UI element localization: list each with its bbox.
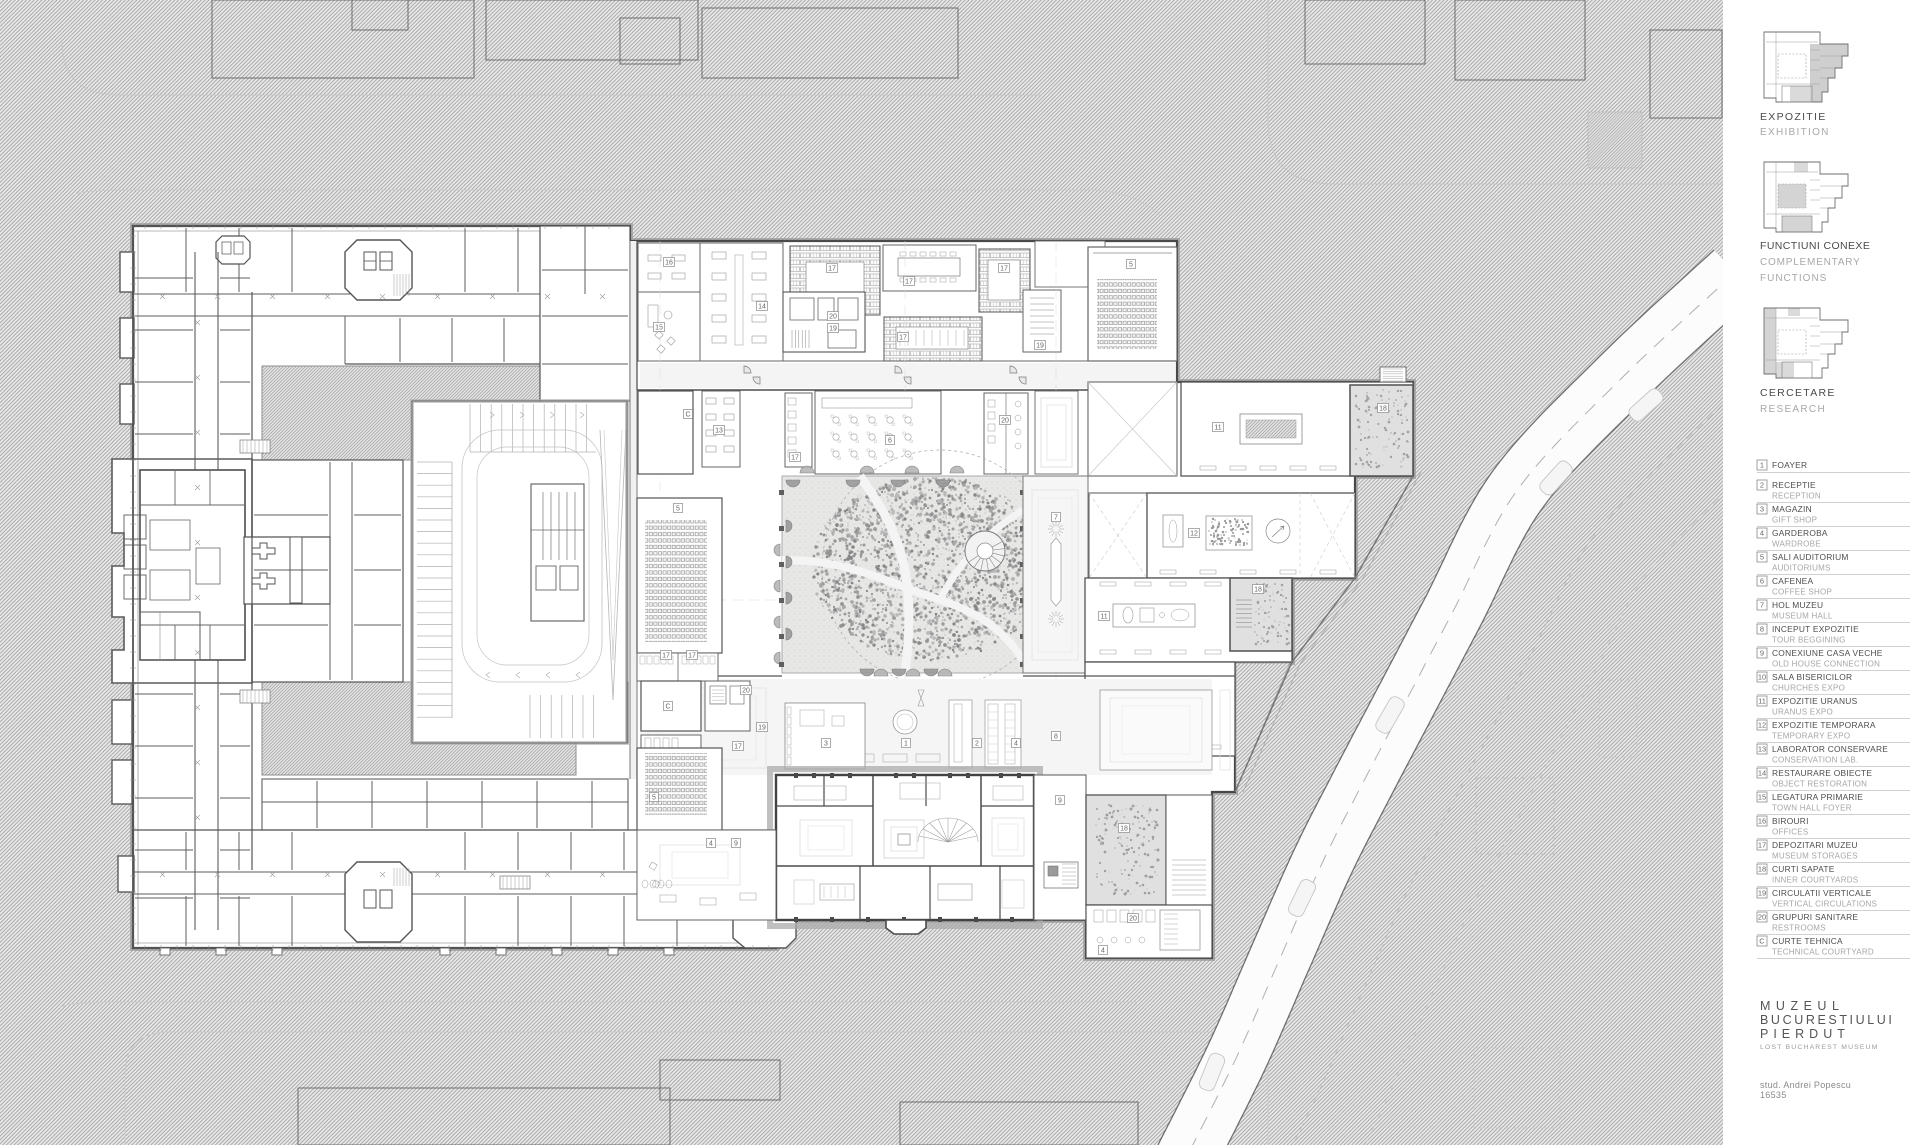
svg-text:17: 17	[688, 653, 696, 660]
svg-text:EXHIBITION: EXHIBITION	[1760, 127, 1830, 138]
svg-text:LABORATOR CONSERVARE: LABORATOR CONSERVARE	[1772, 744, 1888, 754]
svg-text:7: 7	[1760, 601, 1764, 610]
svg-text:17: 17	[791, 455, 799, 462]
svg-text:CURTE TEHNICA: CURTE TEHNICA	[1772, 936, 1843, 946]
svg-text:9: 9	[1058, 798, 1062, 805]
svg-text:5: 5	[1760, 553, 1764, 562]
svg-text:LEGATURA PRIMARIE: LEGATURA PRIMARIE	[1772, 792, 1863, 802]
svg-text:13: 13	[1758, 745, 1766, 754]
svg-text:PIERDUT: PIERDUT	[1760, 1027, 1850, 1041]
svg-text:TOWN HALL FOYER: TOWN HALL FOYER	[1772, 804, 1852, 813]
svg-text:RESTAURARE OBIECTE: RESTAURARE OBIECTE	[1772, 768, 1872, 778]
svg-text:2: 2	[975, 741, 979, 748]
svg-text:11: 11	[1758, 697, 1766, 706]
svg-text:20: 20	[1758, 913, 1766, 922]
svg-text:14: 14	[758, 304, 766, 311]
svg-text:17: 17	[1758, 841, 1766, 850]
svg-text:RECEPTION: RECEPTION	[1772, 492, 1821, 501]
svg-text:EXPOZITIE TEMPORARA: EXPOZITIE TEMPORARA	[1772, 720, 1876, 730]
svg-text:RECEPTIE: RECEPTIE	[1772, 480, 1816, 490]
svg-text:17: 17	[828, 266, 836, 273]
svg-text:FOAYER: FOAYER	[1772, 460, 1807, 470]
svg-text:OFFICES: OFFICES	[1772, 828, 1808, 837]
svg-text:VERTICAL CIRCULATIONS: VERTICAL CIRCULATIONS	[1772, 900, 1877, 909]
svg-text:20: 20	[742, 688, 750, 695]
svg-text:MUSEUM STORAGES: MUSEUM STORAGES	[1772, 852, 1858, 861]
svg-text:WARDROBE: WARDROBE	[1772, 540, 1821, 549]
svg-text:17: 17	[662, 653, 670, 660]
svg-text:FUNCTIONS: FUNCTIONS	[1760, 273, 1827, 284]
svg-text:8: 8	[1760, 625, 1764, 634]
svg-text:16: 16	[665, 260, 673, 267]
svg-text:10: 10	[1758, 673, 1766, 682]
svg-text:stud. Andrei Popescu: stud. Andrei Popescu	[1760, 1080, 1851, 1090]
svg-text:TEMPORARY EXPO: TEMPORARY EXPO	[1772, 732, 1850, 741]
svg-text:AUDITORIUMS: AUDITORIUMS	[1772, 564, 1831, 573]
svg-text:SALA BISERICILOR: SALA BISERICILOR	[1772, 672, 1852, 682]
svg-text:17: 17	[899, 335, 907, 342]
svg-text:19: 19	[829, 326, 837, 333]
svg-text:18: 18	[1120, 826, 1128, 833]
svg-text:COFFEE SHOP: COFFEE SHOP	[1772, 588, 1832, 597]
svg-text:19: 19	[1758, 889, 1766, 898]
svg-text:17: 17	[1000, 266, 1008, 273]
svg-text:15: 15	[1758, 793, 1766, 802]
svg-text:DEPOZITARI MUZEU: DEPOZITARI MUZEU	[1772, 840, 1858, 850]
svg-text:GARDEROBA: GARDEROBA	[1772, 528, 1828, 538]
svg-text:20: 20	[829, 314, 837, 321]
svg-text:6: 6	[1760, 577, 1764, 586]
svg-text:3: 3	[824, 741, 828, 748]
svg-text:EXPOZITIE: EXPOZITIE	[1760, 111, 1827, 123]
svg-text:TOUR BEGGINING: TOUR BEGGINING	[1772, 636, 1846, 645]
svg-text:3: 3	[1760, 505, 1764, 514]
svg-text:GIFT SHOP: GIFT SHOP	[1772, 516, 1817, 525]
svg-text:17: 17	[905, 279, 913, 286]
svg-text:19: 19	[1036, 343, 1044, 350]
svg-text:CURTI SAPATE: CURTI SAPATE	[1772, 864, 1835, 874]
svg-text:15: 15	[655, 325, 663, 332]
svg-text:CHURCHES EXPO: CHURCHES EXPO	[1772, 684, 1845, 693]
svg-text:MUSEUM HALL: MUSEUM HALL	[1772, 612, 1833, 621]
svg-text:BIROURI: BIROURI	[1772, 816, 1809, 826]
svg-text:20: 20	[1129, 916, 1137, 923]
svg-text:MAGAZIN: MAGAZIN	[1772, 504, 1812, 514]
svg-text:4: 4	[1014, 741, 1018, 748]
svg-text:12: 12	[1190, 531, 1198, 538]
svg-text:BUCURESTIULUI: BUCURESTIULUI	[1760, 1013, 1895, 1027]
svg-text:16: 16	[1758, 817, 1766, 826]
svg-text:18: 18	[1758, 865, 1766, 874]
svg-text:INNER COURTYARDS: INNER COURTYARDS	[1772, 876, 1858, 885]
svg-text:CERCETARE: CERCETARE	[1760, 387, 1836, 399]
svg-text:6: 6	[888, 438, 892, 445]
svg-text:MUZEUL: MUZEUL	[1760, 999, 1844, 1013]
svg-text:1: 1	[904, 741, 908, 748]
svg-text:16535: 16535	[1760, 1090, 1787, 1100]
svg-text:COMPLEMENTARY: COMPLEMENTARY	[1760, 257, 1861, 268]
svg-text:RESEARCH: RESEARCH	[1760, 404, 1826, 415]
svg-text:C: C	[685, 412, 690, 419]
svg-text:8: 8	[1054, 734, 1058, 741]
svg-text:SALI AUDITORIUM: SALI AUDITORIUM	[1772, 552, 1849, 562]
svg-text:7: 7	[1054, 515, 1058, 522]
svg-text:TECHNICAL COURTYARD: TECHNICAL COURTYARD	[1772, 948, 1874, 957]
svg-text:4: 4	[1101, 948, 1105, 955]
svg-text:URANUS EXPO: URANUS EXPO	[1772, 708, 1833, 717]
svg-text:14: 14	[1758, 769, 1766, 778]
svg-text:RESTROOMS: RESTROOMS	[1772, 924, 1826, 933]
svg-text:CIRCULATII VERTICALE: CIRCULATII VERTICALE	[1772, 888, 1872, 898]
svg-text:4: 4	[709, 841, 713, 848]
svg-text:9: 9	[734, 841, 738, 848]
svg-text:5: 5	[1129, 262, 1133, 269]
svg-text:CONSERVATION LAB.: CONSERVATION LAB.	[1772, 756, 1859, 765]
svg-text:OBJECT RESTORATION: OBJECT RESTORATION	[1772, 780, 1867, 789]
svg-text:C: C	[665, 704, 670, 711]
svg-text:5: 5	[652, 795, 656, 802]
svg-text:13: 13	[715, 428, 723, 435]
svg-text:11: 11	[1100, 614, 1107, 621]
svg-text:4: 4	[1760, 529, 1764, 538]
svg-text:1: 1	[1760, 461, 1764, 470]
svg-text:9: 9	[1760, 649, 1764, 658]
svg-text:12: 12	[1758, 721, 1766, 730]
svg-text:OLD HOUSE CONNECTION: OLD HOUSE CONNECTION	[1772, 660, 1880, 669]
svg-text:CAFENEA: CAFENEA	[1772, 576, 1813, 586]
svg-text:19: 19	[758, 725, 766, 732]
svg-text:FUNCTIUNI CONEXE: FUNCTIUNI CONEXE	[1760, 240, 1870, 252]
svg-text:20: 20	[1001, 418, 1009, 425]
svg-text:18: 18	[1254, 587, 1262, 594]
svg-text:HOL MUZEU: HOL MUZEU	[1772, 600, 1823, 610]
svg-text:EXPOZITIE URANUS: EXPOZITIE URANUS	[1772, 696, 1858, 706]
svg-text:2: 2	[1760, 481, 1764, 490]
svg-text:17: 17	[734, 744, 742, 751]
svg-text:GRUPURI SANITARE: GRUPURI SANITARE	[1772, 912, 1858, 922]
svg-text:5: 5	[676, 506, 680, 513]
svg-text:CONEXIUNE CASA VECHE: CONEXIUNE CASA VECHE	[1772, 648, 1883, 658]
svg-text:INCEPUT EXPOZITIE: INCEPUT EXPOZITIE	[1772, 624, 1859, 634]
svg-text:18: 18	[1379, 406, 1387, 413]
svg-text:LOST BUCHAREST MUSEUM: LOST BUCHAREST MUSEUM	[1760, 1044, 1879, 1051]
svg-text:C: C	[1759, 937, 1765, 946]
svg-text:11: 11	[1214, 425, 1221, 432]
